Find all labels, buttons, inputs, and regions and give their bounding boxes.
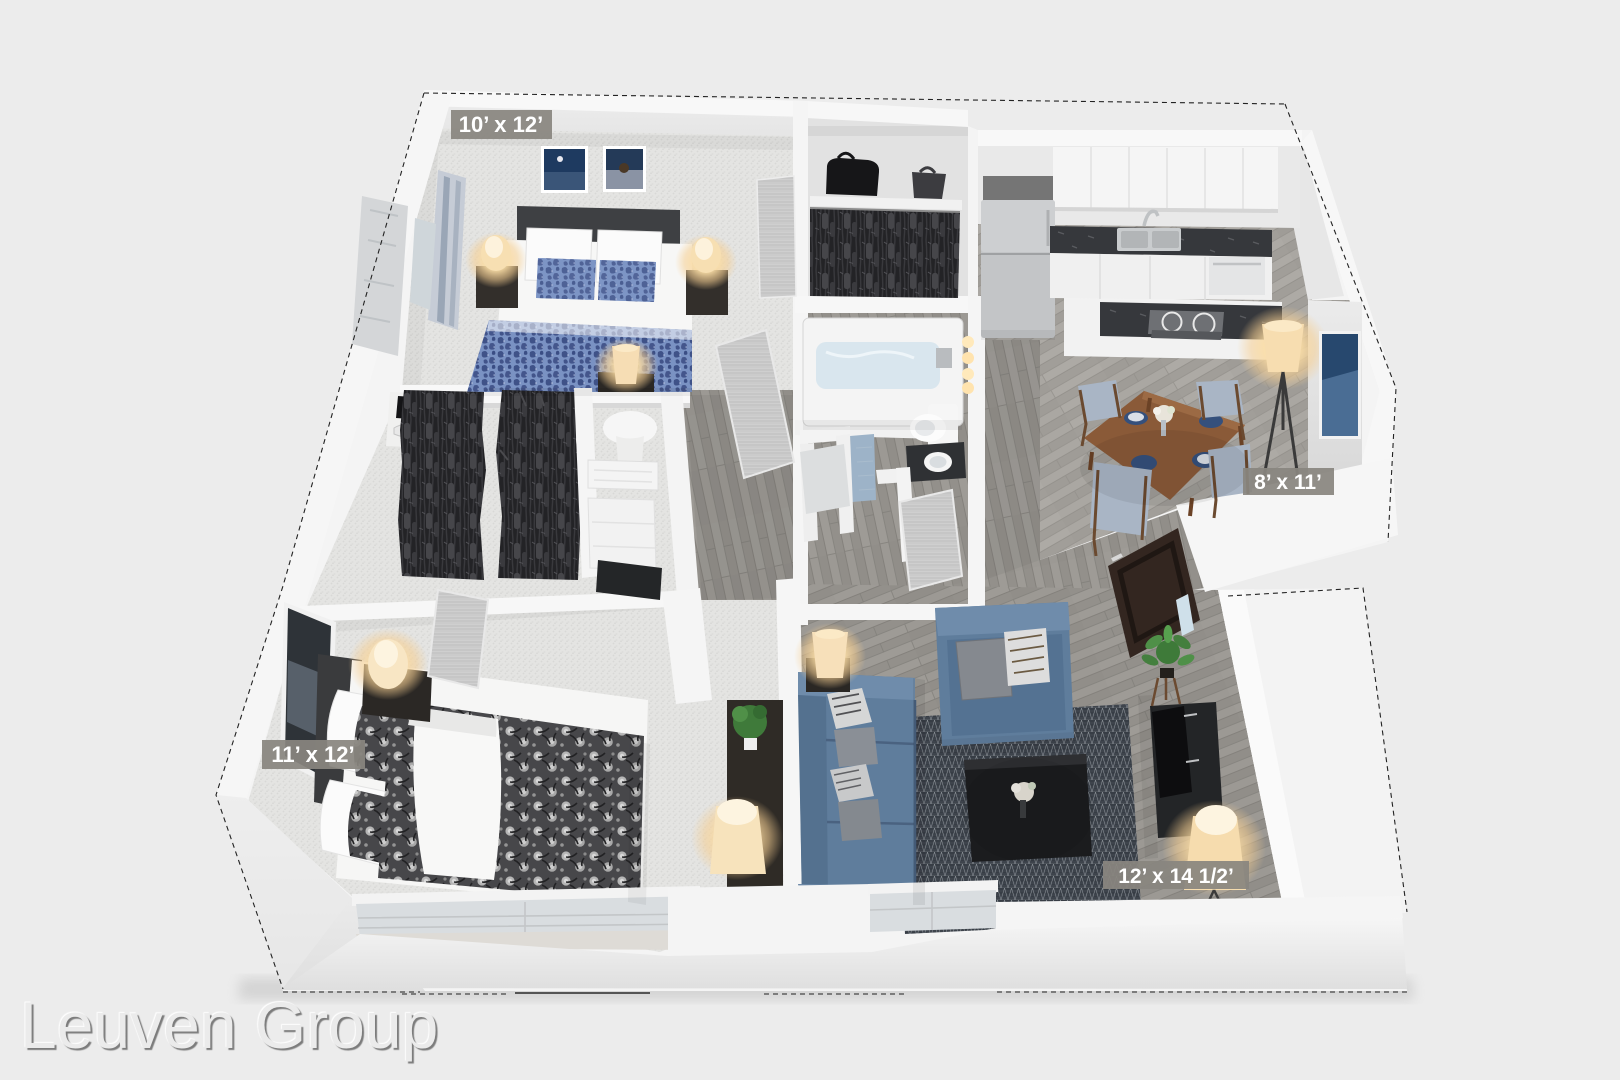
svg-text:11’ x 12’: 11’ x 12’ xyxy=(271,742,354,767)
svg-text:12’ x 14 1/2’: 12’ x 14 1/2’ xyxy=(1118,865,1234,888)
svg-text:8’ x 11’: 8’ x 11’ xyxy=(1254,471,1322,494)
svg-text:10’ x 12’: 10’ x 12’ xyxy=(459,112,543,137)
